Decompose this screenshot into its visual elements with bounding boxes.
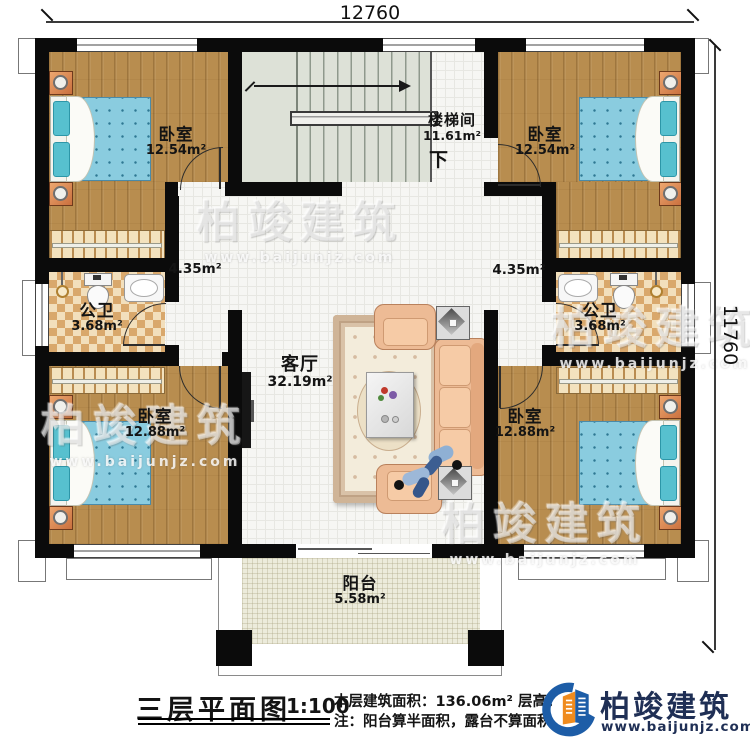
room-label-balcony: 阳台 5.58m² bbox=[300, 575, 420, 608]
room-area: 3.68m² bbox=[550, 320, 650, 335]
balcony-sliding-door bbox=[296, 544, 432, 558]
bed bbox=[580, 420, 680, 504]
balcony-post bbox=[468, 630, 504, 666]
wardrobe bbox=[49, 367, 165, 394]
window bbox=[524, 544, 644, 558]
window bbox=[74, 544, 200, 558]
title-underline bbox=[138, 723, 330, 725]
wall bbox=[228, 52, 242, 182]
sink-basin bbox=[564, 279, 592, 297]
sofa-back bbox=[471, 343, 484, 469]
wall bbox=[542, 196, 556, 302]
room-label-stairwell: 楼梯间 11.61m² bbox=[407, 112, 497, 143]
brand-url: www.baijunjz.com bbox=[601, 719, 750, 735]
room-label-bedroom-tr: 卧室 12.54m² bbox=[485, 126, 605, 159]
room-area: 12.54m² bbox=[485, 144, 605, 159]
room-area: 11.61m² bbox=[407, 129, 497, 143]
room-name: 楼梯间 bbox=[407, 112, 497, 129]
right-dimension-line bbox=[714, 46, 716, 650]
pillow bbox=[660, 101, 677, 136]
floor-drain bbox=[56, 285, 69, 298]
side-table bbox=[436, 306, 470, 340]
room-name: 卧室 bbox=[116, 126, 236, 144]
flower bbox=[389, 391, 397, 399]
stair-down-label: 下 bbox=[424, 150, 454, 171]
room-area: 3.68m² bbox=[47, 320, 147, 335]
pillow bbox=[660, 142, 677, 177]
slider-panel-line bbox=[358, 553, 430, 555]
down-text: 下 bbox=[424, 150, 454, 171]
person bbox=[392, 462, 436, 502]
person-head bbox=[452, 460, 462, 470]
stair-direction-arrow bbox=[254, 85, 402, 87]
wall bbox=[165, 182, 178, 196]
room-name: 卧室 bbox=[465, 408, 585, 426]
tv-stand bbox=[251, 400, 254, 422]
room-label-bathroom-left: 公卫 3.68m² bbox=[47, 302, 147, 335]
room-area: 12.54m² bbox=[116, 144, 236, 159]
room-name: 客厅 bbox=[240, 355, 360, 375]
slider-panel-line bbox=[298, 548, 372, 550]
dimension-tick bbox=[702, 641, 715, 654]
window-sill bbox=[694, 282, 711, 354]
nightstand bbox=[49, 395, 73, 419]
dimension-tick bbox=[687, 9, 700, 22]
window bbox=[77, 38, 197, 52]
room-label-bedroom-br: 卧室 12.88m² bbox=[465, 408, 585, 441]
flower bbox=[381, 387, 388, 394]
right-dimension-value: 11760 bbox=[719, 295, 741, 375]
wall bbox=[165, 196, 179, 302]
window bbox=[526, 38, 644, 52]
drain-cord bbox=[61, 272, 63, 285]
room-area: 32.19m² bbox=[240, 375, 360, 391]
stair-treads-upper bbox=[296, 52, 432, 112]
pillow bbox=[53, 425, 70, 460]
sink-basin bbox=[130, 279, 158, 297]
floor-plan-page: 12760 11760 bbox=[0, 0, 750, 743]
plan-note-text: 注：阳台算半面积，露台不算面积 bbox=[334, 710, 560, 731]
pillow bbox=[53, 466, 70, 501]
window-sill bbox=[66, 558, 212, 580]
person-head bbox=[394, 480, 404, 490]
wall bbox=[548, 352, 695, 366]
lamp-top bbox=[449, 319, 457, 327]
nightstand bbox=[659, 182, 683, 206]
nightstand bbox=[49, 182, 73, 206]
room-area: 4.35m² bbox=[155, 262, 235, 277]
area-label-hallway-right: 4.35m² bbox=[479, 263, 559, 278]
door-leaf bbox=[219, 366, 221, 408]
floor-drain bbox=[650, 285, 663, 298]
toilet-flush-button bbox=[619, 275, 627, 280]
room-name: 公卫 bbox=[550, 302, 650, 320]
room-label-bedroom-tl: 卧室 12.54m² bbox=[116, 126, 236, 159]
wardrobe bbox=[556, 230, 681, 259]
room-label-bathroom-right: 公卫 3.68m² bbox=[550, 302, 650, 335]
brand-logo-svg bbox=[540, 680, 596, 740]
toilet-flush-button bbox=[93, 275, 101, 280]
title-underline bbox=[138, 718, 330, 720]
sofa-cushion bbox=[439, 345, 471, 386]
room-name: 卧室 bbox=[485, 126, 605, 144]
room-label-living-room: 客厅 32.19m² bbox=[240, 355, 360, 391]
wardrobe bbox=[556, 367, 681, 394]
balcony-post bbox=[216, 630, 252, 666]
room-area: 12.88m² bbox=[95, 426, 215, 441]
door-leaf bbox=[556, 344, 598, 346]
room-name: 阳台 bbox=[300, 575, 420, 593]
nightstand bbox=[659, 395, 683, 419]
pillow bbox=[660, 425, 677, 460]
armchair bbox=[374, 304, 436, 350]
room-name: 公卫 bbox=[47, 302, 147, 320]
wall bbox=[228, 310, 242, 544]
table-knob bbox=[381, 415, 389, 423]
door-leaf bbox=[499, 366, 501, 408]
area-label-hallway-left: 4.35m² bbox=[155, 262, 235, 277]
room-area: 5.58m² bbox=[300, 593, 420, 608]
wall bbox=[35, 352, 172, 366]
door-leaf bbox=[123, 344, 165, 346]
wall bbox=[225, 182, 342, 196]
armchair-cushion bbox=[383, 318, 428, 346]
dimension-tick bbox=[41, 9, 54, 22]
room-name: 卧室 bbox=[95, 408, 215, 426]
drain-cord bbox=[655, 272, 657, 285]
pillow bbox=[660, 466, 677, 501]
door-leaf bbox=[498, 184, 540, 186]
wardrobe bbox=[49, 230, 165, 259]
table-knob bbox=[392, 416, 399, 423]
wall bbox=[542, 258, 695, 272]
room-area: 12.88m² bbox=[465, 426, 585, 441]
brand-logo-icon bbox=[540, 680, 596, 740]
lamp-top bbox=[451, 479, 459, 487]
plan-title: 三层平面图 bbox=[136, 688, 291, 727]
top-dimension-value: 12760 bbox=[325, 2, 415, 24]
nightstand bbox=[659, 506, 683, 530]
nightstand bbox=[49, 71, 73, 95]
pillow bbox=[53, 101, 70, 136]
nightstand bbox=[49, 506, 73, 530]
window bbox=[681, 284, 695, 346]
pillow bbox=[53, 142, 70, 177]
room-label-bedroom-bl: 卧室 12.88m² bbox=[95, 408, 215, 441]
flower bbox=[378, 395, 384, 401]
nightstand bbox=[659, 71, 683, 95]
coffee-table bbox=[366, 372, 414, 438]
window bbox=[383, 38, 475, 52]
stair-arrowhead bbox=[399, 80, 411, 92]
building-area-text: 本层建筑面积：136.06m² 层高：3 bbox=[334, 690, 560, 711]
room-area: 4.35m² bbox=[479, 263, 559, 278]
window-sill bbox=[518, 558, 666, 580]
